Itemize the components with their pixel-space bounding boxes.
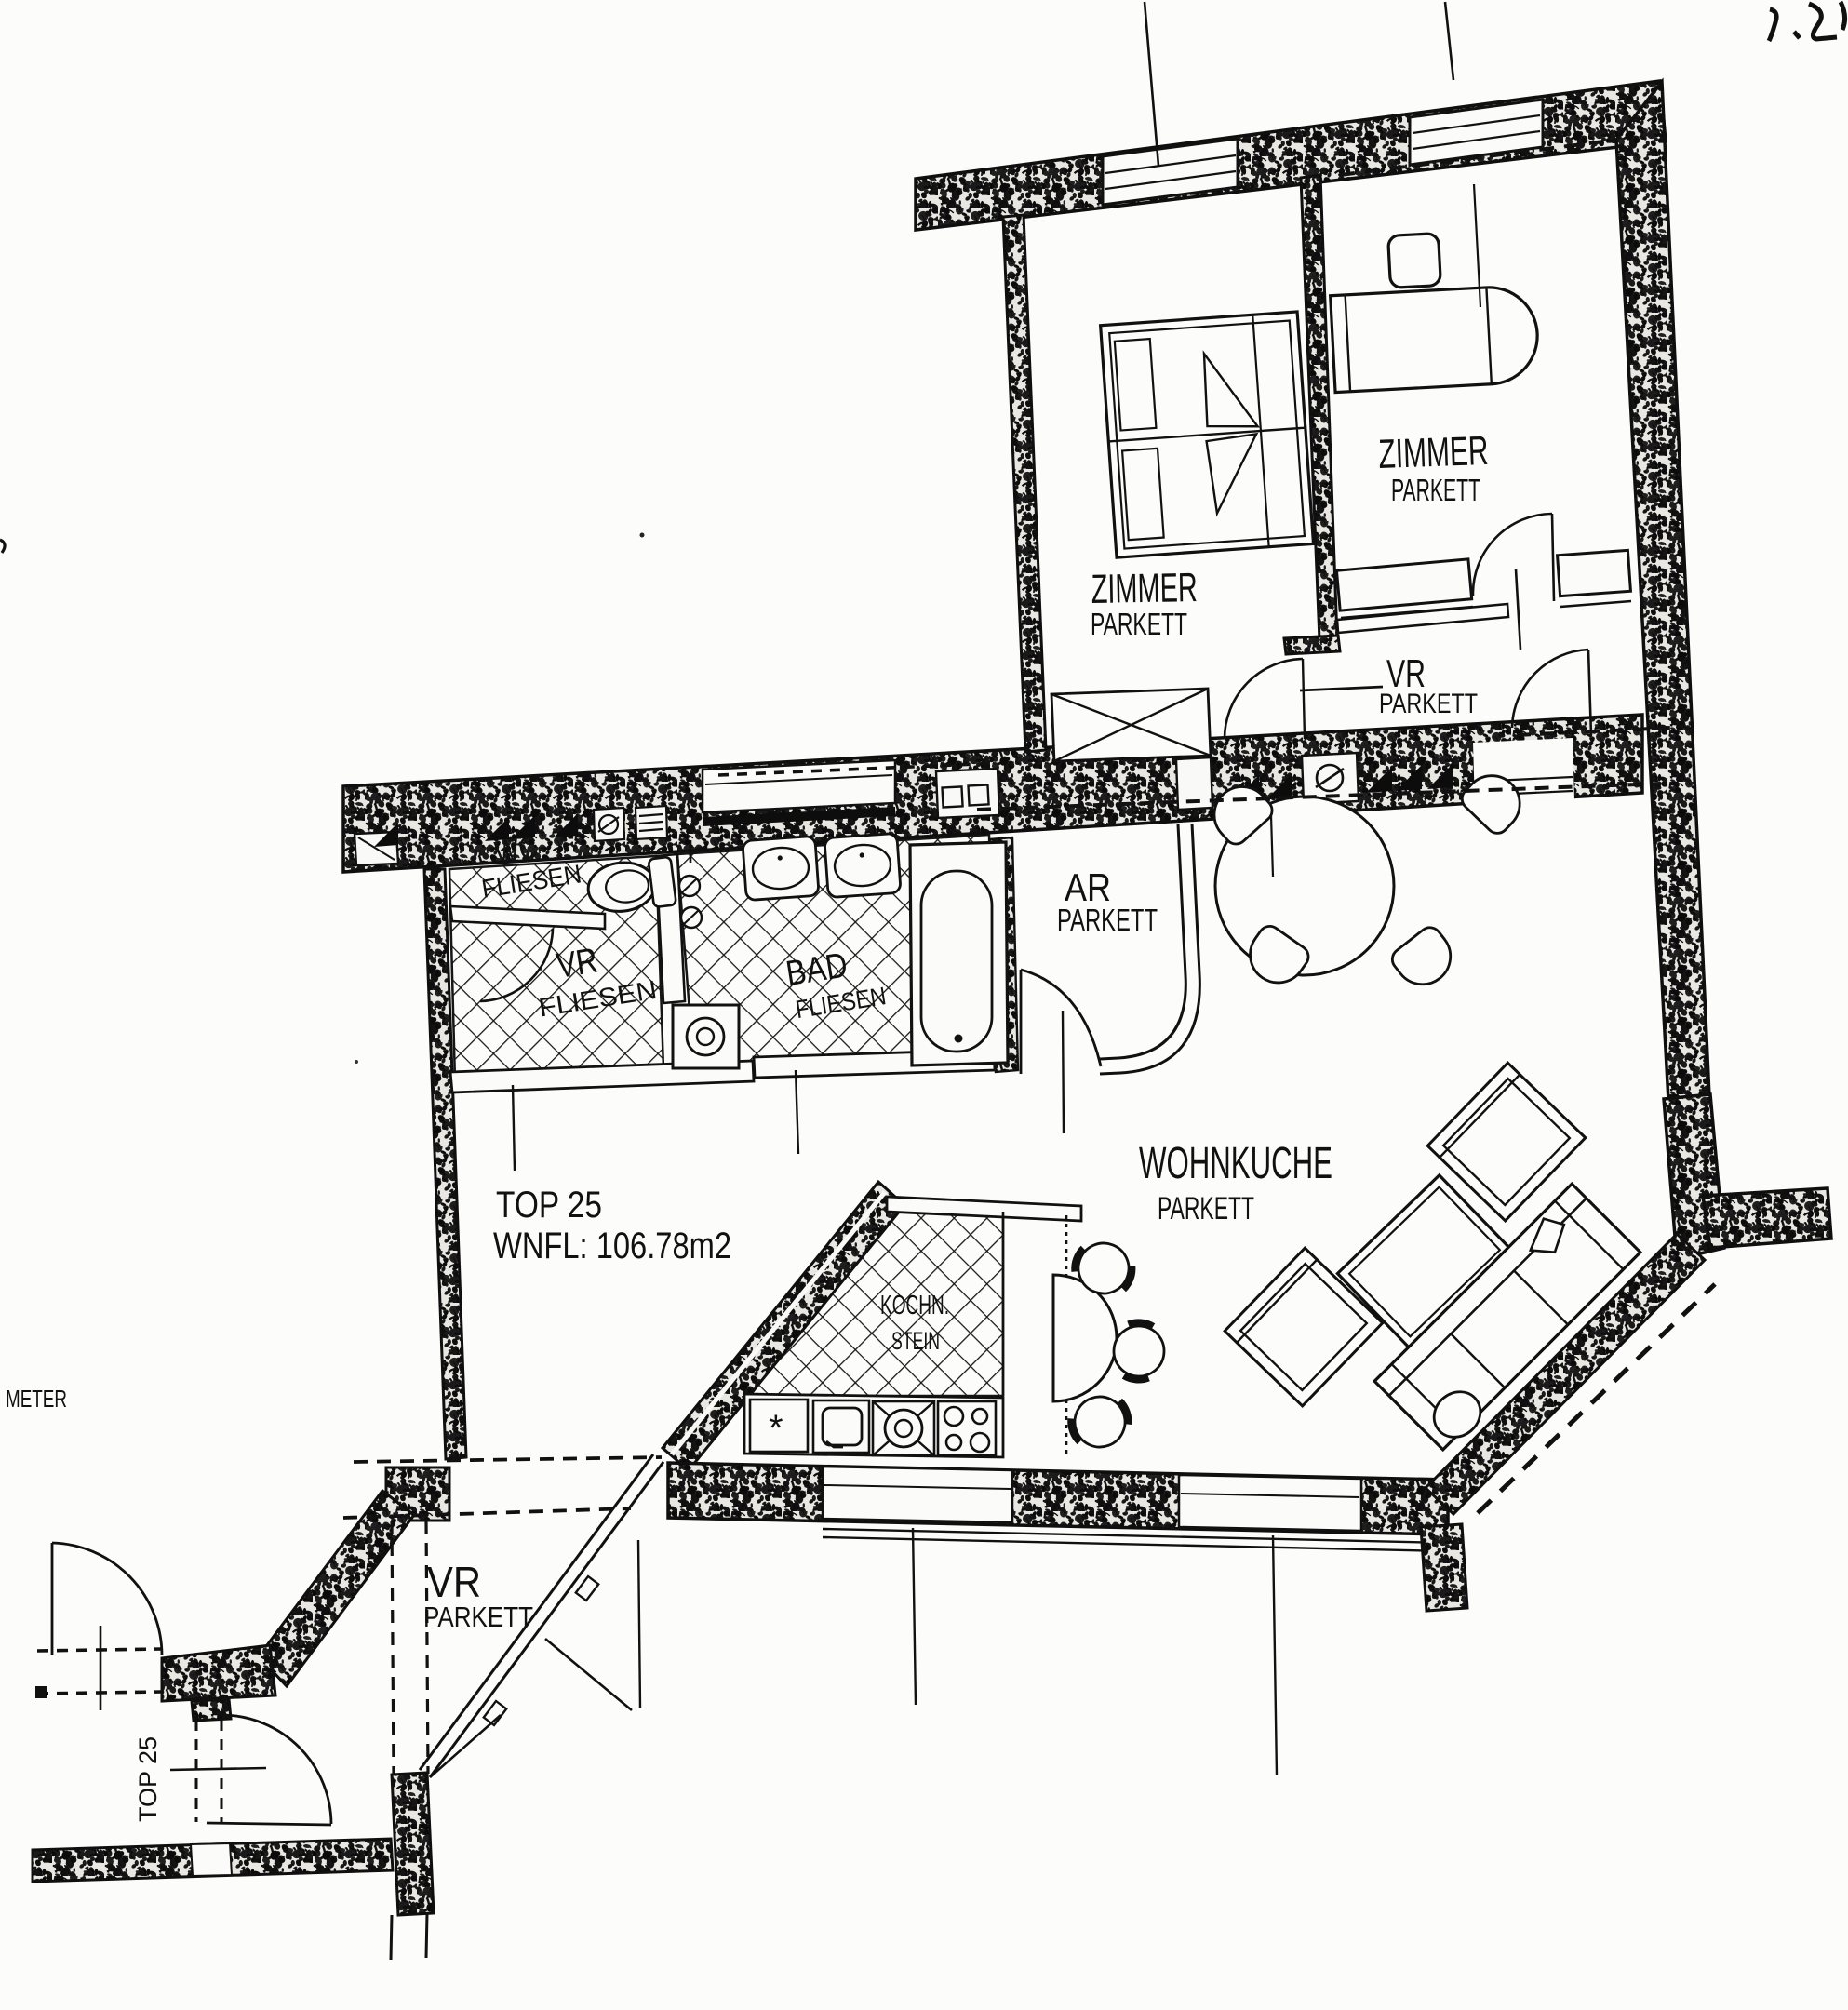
svg-text:WNFL: 106.78m2: WNFL: 106.78m2 — [493, 1226, 731, 1266]
svg-text:METER: METER — [6, 1385, 67, 1413]
svg-text:PARKETT: PARKETT — [1057, 903, 1158, 937]
svg-text:PARKETT: PARKETT — [1379, 689, 1478, 719]
svg-text:TOP 25: TOP 25 — [496, 1185, 602, 1226]
svg-text:TOP 25: TOP 25 — [134, 1736, 162, 1822]
svg-text:*: * — [769, 1408, 783, 1449]
svg-text:PARKETT: PARKETT — [423, 1601, 533, 1633]
svg-text:WC: WC — [492, 829, 540, 871]
svg-text:VR: VR — [554, 941, 600, 985]
svg-text:PARKETT: PARKETT — [1158, 1191, 1254, 1226]
svg-text:KOCHN.: KOCHN. — [880, 1291, 949, 1320]
svg-text:ZIMMER: ZIMMER — [1378, 428, 1490, 477]
svg-text:ZIMMER: ZIMMER — [1091, 565, 1198, 612]
svg-text:PARKETT: PARKETT — [1391, 473, 1480, 507]
svg-text:WOHNKUCHE: WOHNKUCHE — [1139, 1139, 1332, 1188]
svg-text:PARKETT: PARKETT — [1091, 607, 1187, 641]
svg-text:VR: VR — [427, 1558, 481, 1606]
svg-text:STEIN: STEIN — [891, 1327, 940, 1355]
